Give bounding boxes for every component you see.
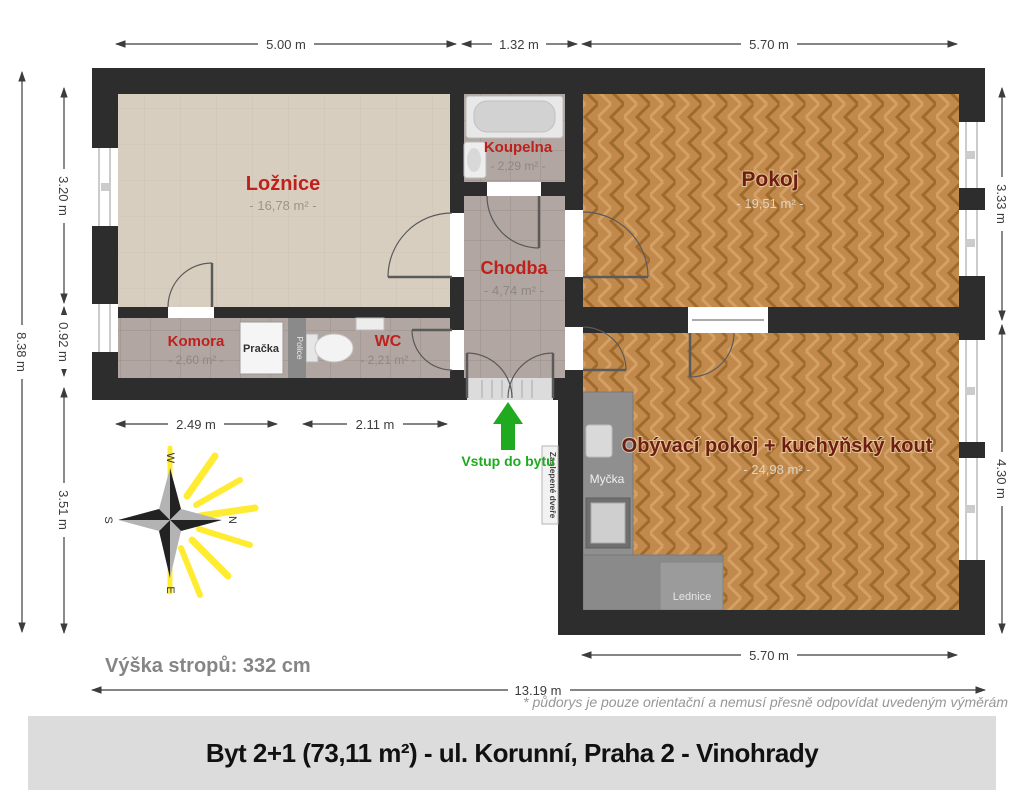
window-pokoj-1 [959,122,985,188]
dim-right-1: 3.33 m [994,184,1009,224]
window-obyvaci-2 [959,458,985,560]
stove-door [591,503,625,543]
floor-plan-svg: Myčka Lednice [0,0,1024,712]
wall-living-left [558,400,583,610]
room-area-obyvaci: - 24,98 m² - [743,462,810,477]
compass-south: S [102,516,114,523]
room-name-pokoj: Pokoj [741,168,798,191]
room-name-obyvaci: Obývací pokoj + kuchyňský kout [622,435,933,457]
room-area-wc: - 2,21 m² - [360,353,415,367]
floor-plan-page: Myčka Lednice [0,0,1024,807]
dim-left-1: 3.20 m [56,176,71,216]
door-opening-pokoj-obyvaci [688,307,768,333]
shelf-label: Police [295,336,305,359]
room-area-loznice: - 16,78 m² - [249,198,316,213]
room-area-pokoj: - 19,51 m² - [736,196,803,211]
door-opening-pokoj [565,210,583,277]
wall-bedroom-bottom [118,307,450,318]
kitchen-sink [586,425,612,457]
dim-bottom-right: 5.70 m [749,648,789,663]
bathtub [466,96,563,138]
room-area-koupelna: - 2,29 m² - [490,159,545,173]
dim-left-total: 8.38 m [14,332,29,372]
room-name-wc: WC [375,333,402,350]
page-title: Byt 2+1 (73,11 m²) - ul. Korunní, Praha … [206,738,818,769]
compass-star-icon [118,468,222,578]
entry-marker: Vstup do bytu [461,402,554,469]
dim-right-2: 4.30 m [994,459,1009,499]
entry-label: Vstup do bytu [461,453,554,469]
wall-top [92,68,985,94]
door-opening-obyvaci [565,327,583,370]
dim-bottom-2: 2.11 m [356,417,395,432]
toilet [306,334,353,362]
compass-north: N [226,516,238,524]
dim-top-3: 5.70 m [749,37,789,52]
dim-left-2: 0.92 m [56,322,71,362]
washer-label: Pračka [243,343,280,355]
ceiling-height-note: Výška stropů: 332 cm [105,655,311,677]
wall-entry-right [553,378,583,400]
compass-east: E [164,586,176,593]
dim-top-1: 5.00 m [266,37,306,52]
room-area-chodba: - 4,74 m² - [484,283,544,298]
room-name-komora: Komora [168,333,225,350]
dim-left-3: 3.51 m [56,490,71,530]
room-name-loznice: Ložnice [246,173,320,195]
bath-sink [464,142,486,178]
fridge-label: Lednice [673,591,712,603]
dim-bottom-1: 2.49 m [176,417,216,432]
window-pokoj-2 [959,210,985,276]
room-name-koupelna: Koupelna [484,139,553,156]
wall-left [92,94,118,400]
title-bar: Byt 2+1 (73,11 m²) - ul. Korunní, Praha … [28,716,996,790]
washing-machine: Pračka [240,322,283,374]
compass-west: W [164,453,176,464]
window-komora [92,304,118,352]
wall-bottom-right [558,610,985,635]
room-name-chodba: Chodba [481,258,549,278]
door-opening-wc [450,330,464,370]
window-obyvaci-1 [959,340,985,442]
door-opening-loznice [450,213,464,277]
dim-top-2: 1.32 m [499,37,539,52]
entry-threshold [467,378,553,400]
room-area-komora: - 2,60 m² - [168,353,223,367]
compass-rose: W N E S [102,448,255,595]
door-opening-komora [168,307,214,318]
window-loznice-1 [92,148,118,226]
shelf-strip: Police [288,318,306,378]
wc-sink [356,318,384,330]
wall-pokoj-obyvaci [583,307,960,333]
entry-arrow-icon [493,402,523,424]
dishwasher-label: Myčka [590,472,625,486]
door-opening-koupelna [487,182,541,196]
wall-bottom-left [92,378,467,400]
disclaimer-note: * půdorys je pouze orientační a nemusí p… [523,694,1008,710]
